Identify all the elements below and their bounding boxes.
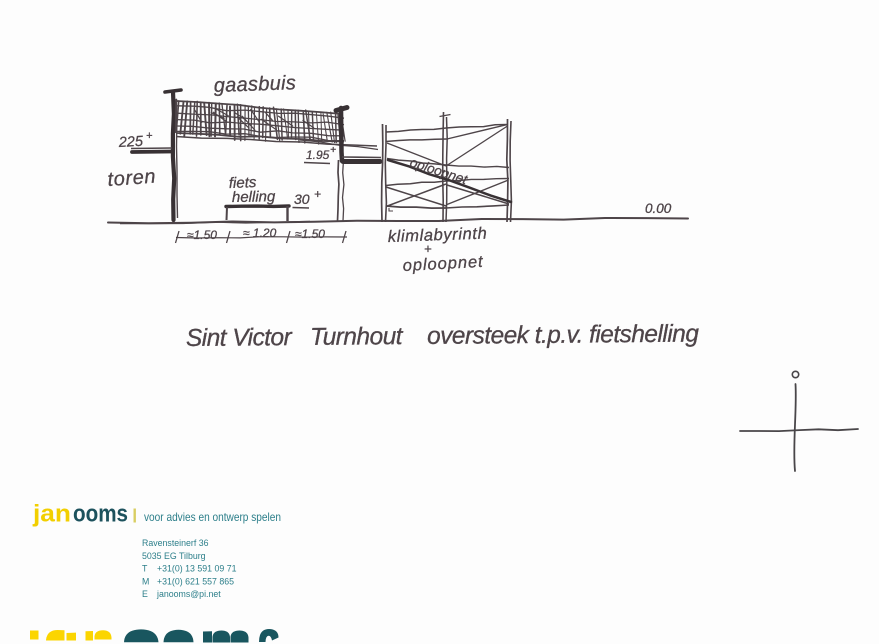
svg-text:T: T — [142, 564, 148, 574]
svg-text:+: + — [330, 144, 336, 156]
svg-text:voor advies en ontwerp spelen: voor advies en ontwerp spelen — [144, 510, 281, 524]
svg-text:+: + — [314, 187, 321, 201]
svg-text:225: 225 — [117, 134, 144, 151]
svg-text:≈1.50: ≈1.50 — [295, 227, 325, 241]
svg-text:Sint Victor Turnhout ove: Sint Victor Turnhout oversteek t.p.v. fi… — [186, 321, 700, 352]
svg-text:Ravensteinerf 36: Ravensteinerf 36 — [142, 538, 209, 548]
svg-text:E: E — [142, 589, 148, 599]
svg-text:gaasbuis: gaasbuis — [213, 72, 296, 97]
svg-text:M: M — [142, 577, 149, 587]
svg-text:ooms: ooms — [73, 501, 128, 528]
svg-text:+: + — [146, 130, 153, 142]
svg-text:jan: jan — [32, 501, 71, 528]
svg-text:+31(0) 13 591 09 71: +31(0) 13 591 09 71 — [157, 564, 237, 574]
svg-text:+: + — [424, 241, 432, 256]
svg-text:≈1.50: ≈1.50 — [187, 228, 217, 242]
svg-text:≈ 1.20: ≈ 1.20 — [243, 226, 277, 240]
svg-text:5035 EG Tilburg: 5035 EG Tilburg — [142, 551, 206, 561]
svg-text:toren: toren — [107, 166, 156, 191]
svg-text:klimlabyrinth: klimlabyrinth — [388, 225, 488, 246]
svg-text:janooms@pi.net: janooms@pi.net — [156, 589, 221, 599]
svg-text:30: 30 — [294, 191, 310, 207]
svg-text:0.00: 0.00 — [645, 201, 672, 216]
svg-text:1.95: 1.95 — [306, 148, 330, 162]
svg-text:helling: helling — [232, 188, 276, 206]
svg-text:+31(0) 621 557 865: +31(0) 621 557 865 — [157, 577, 234, 587]
